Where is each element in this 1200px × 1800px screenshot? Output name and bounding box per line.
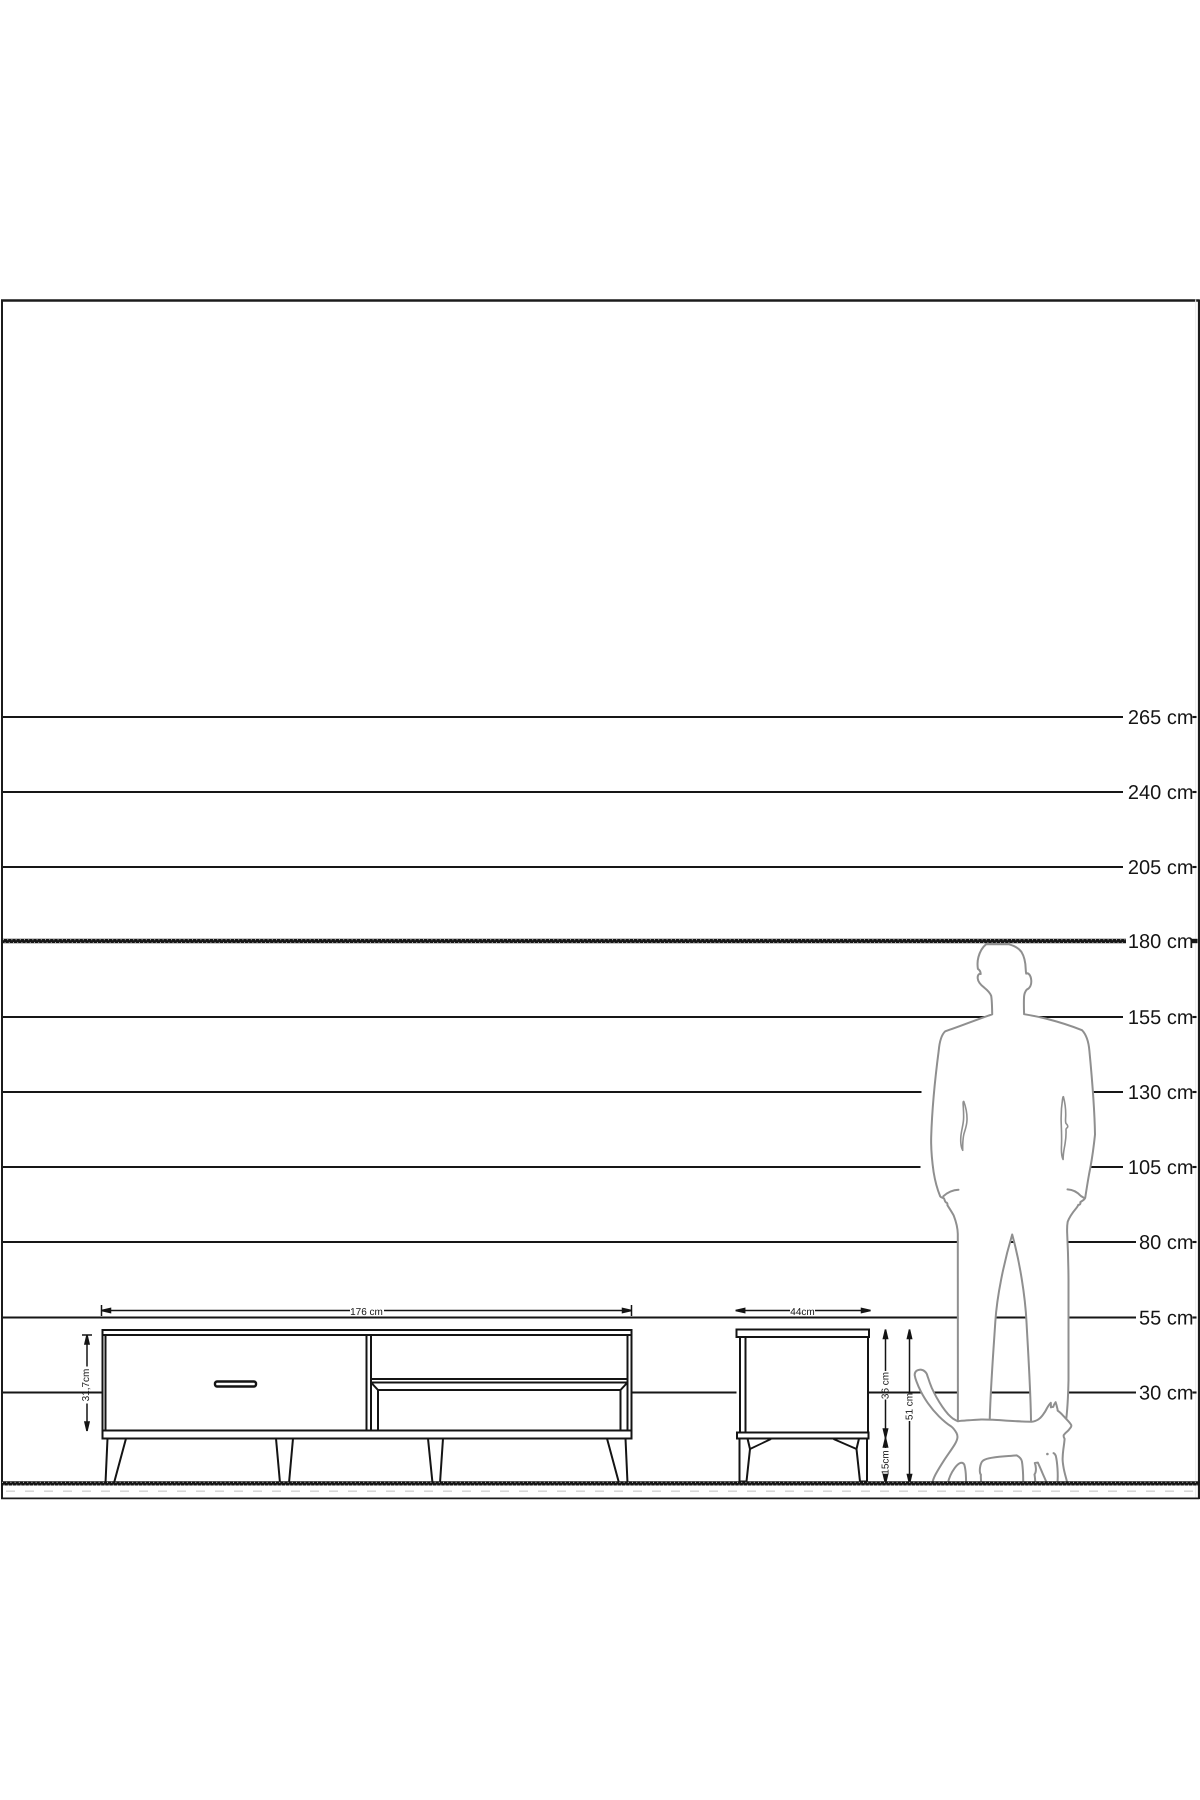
svg-text:105 cm: 105 cm [1128, 1157, 1194, 1179]
svg-text:55 cm: 55 cm [1139, 1308, 1193, 1330]
svg-text:51 cm: 51 cm [905, 1393, 916, 1420]
svg-text:176 cm: 176 cm [350, 1307, 383, 1318]
svg-text:240 cm: 240 cm [1128, 782, 1194, 804]
svg-text:180 cm: 180 cm [1128, 931, 1194, 953]
svg-text:44cm: 44cm [790, 1307, 814, 1318]
svg-text:36 cm: 36 cm [881, 1372, 892, 1399]
svg-text:31,7cm: 31,7cm [81, 1369, 92, 1402]
svg-text:205 cm: 205 cm [1128, 857, 1194, 879]
svg-text:130 cm: 130 cm [1128, 1082, 1194, 1104]
svg-text:15cm: 15cm [881, 1450, 892, 1474]
svg-text:30 cm: 30 cm [1139, 1383, 1193, 1405]
svg-text:80 cm: 80 cm [1139, 1232, 1193, 1254]
svg-text:155 cm: 155 cm [1128, 1007, 1194, 1029]
svg-text:265 cm: 265 cm [1128, 707, 1194, 729]
